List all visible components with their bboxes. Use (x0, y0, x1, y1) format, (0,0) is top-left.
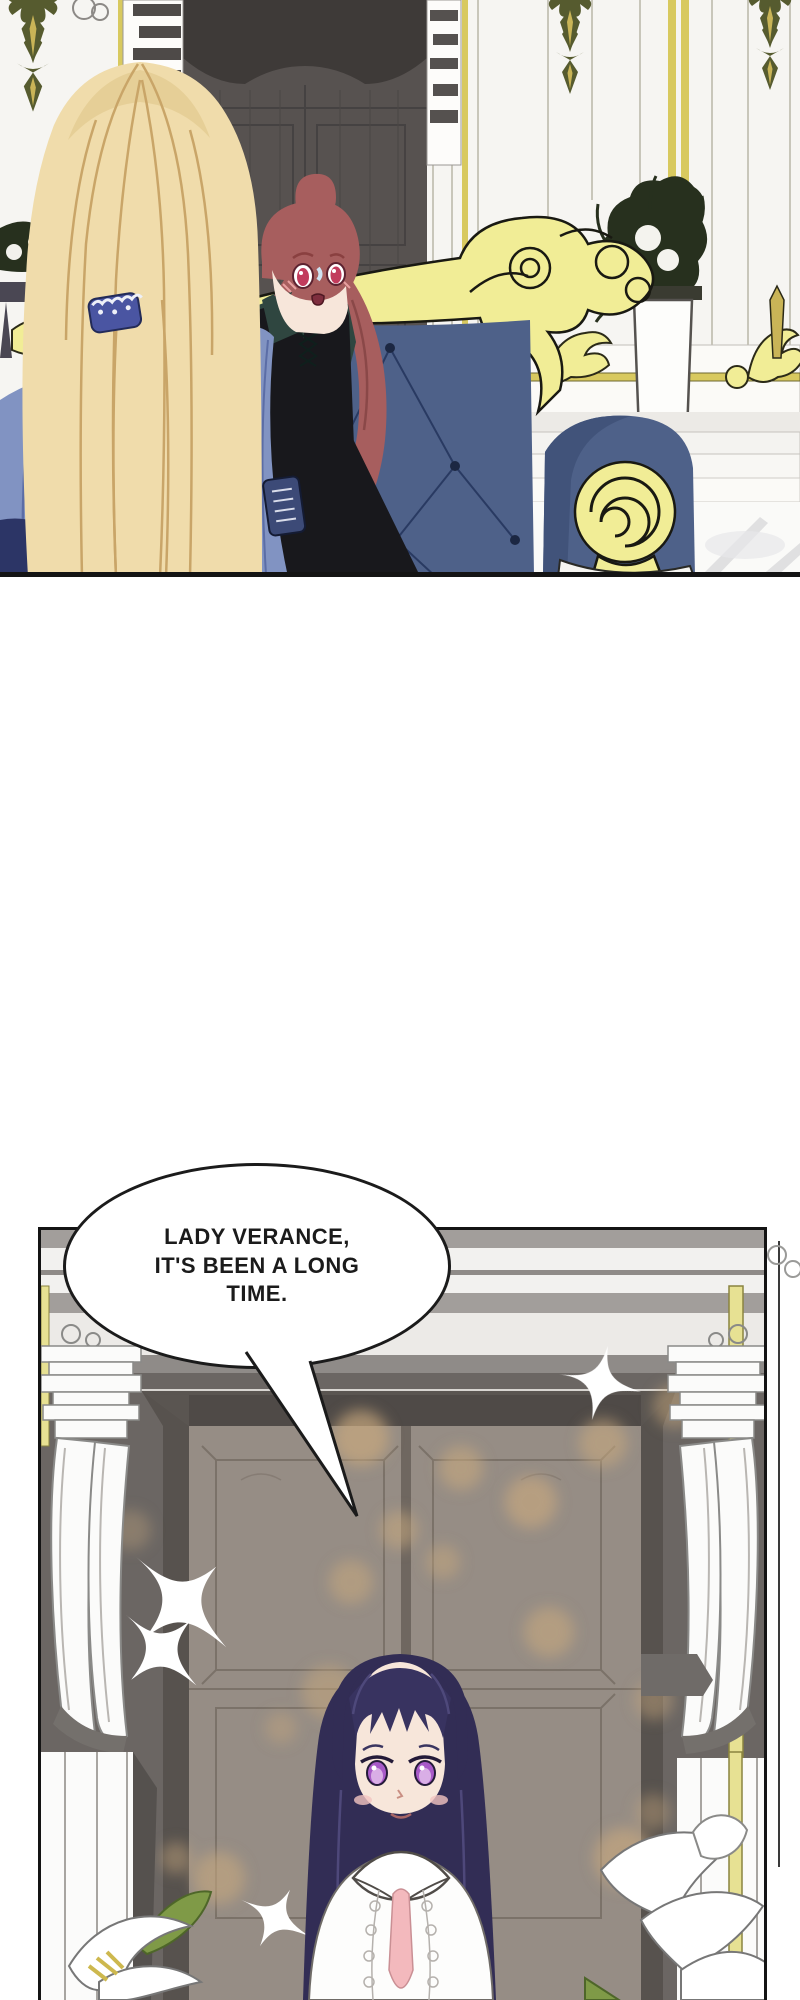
waist-badge (262, 476, 305, 536)
speech-bubble: LADY VERANCE, IT'S BEEN A LONG TIME. (63, 1163, 451, 1369)
outer-edge-ornament (767, 1227, 800, 1887)
comic-page: LADY VERANCE, IT'S BEEN A LONG TIME. (0, 0, 800, 2000)
speech-line: TIME. (93, 1280, 422, 1309)
panel-top-scene (0, 0, 800, 577)
speech-line: IT'S BEEN A LONG (93, 1252, 422, 1281)
speech-line: LADY VERANCE, (93, 1223, 422, 1252)
speech-text: LADY VERANCE, IT'S BEEN A LONG TIME. (93, 1223, 422, 1309)
panel-top-border (0, 572, 800, 577)
purple-haired-character (303, 1654, 496, 2000)
